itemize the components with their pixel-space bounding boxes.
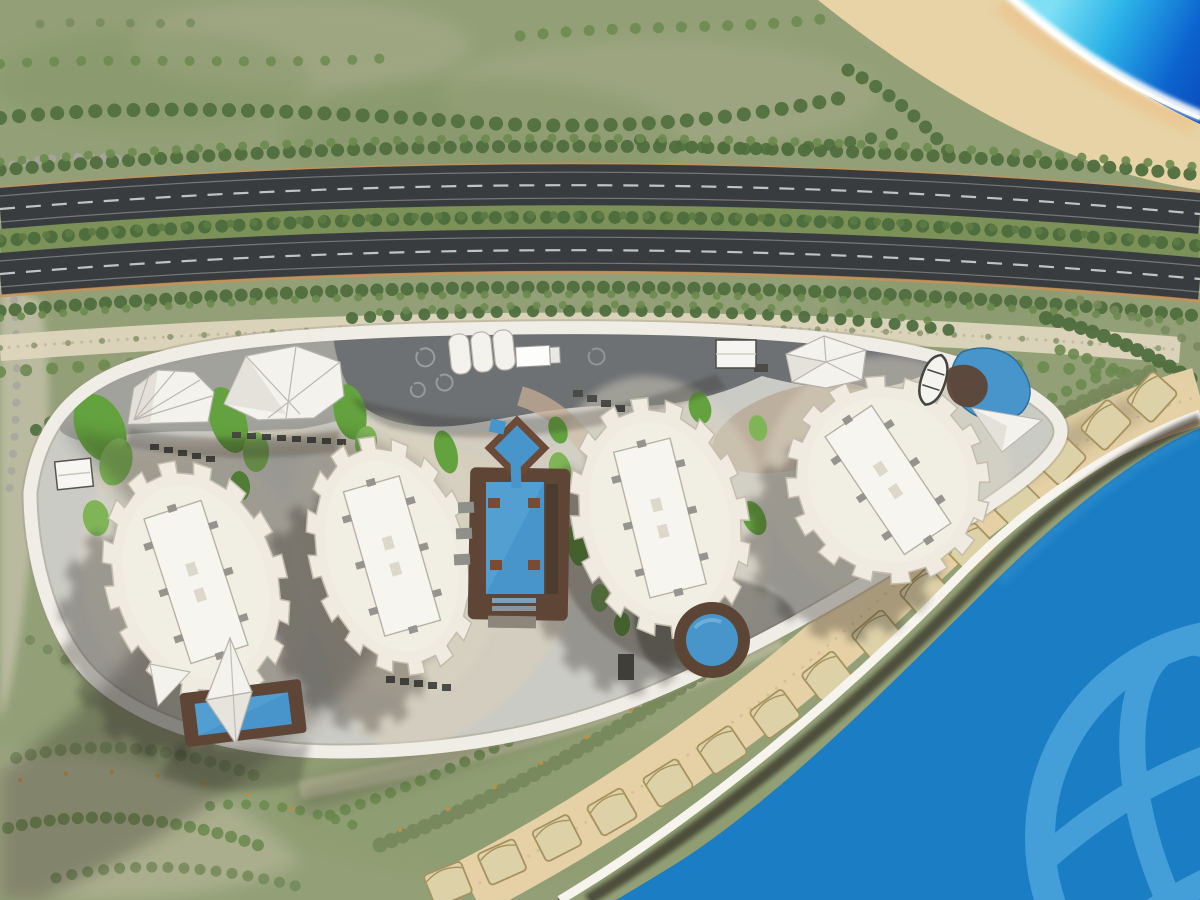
clubhouse-north [716,340,756,368]
bench [428,682,437,689]
bench [573,390,583,397]
round-pool [674,602,750,678]
gatehouse-west [55,458,94,490]
parking-arch-canopies [448,329,516,375]
bench [442,684,451,691]
site-plan-rendering [0,0,1200,900]
bench [232,432,241,438]
bench [587,395,597,402]
bench [601,400,611,407]
main-lap-pool [454,467,571,628]
